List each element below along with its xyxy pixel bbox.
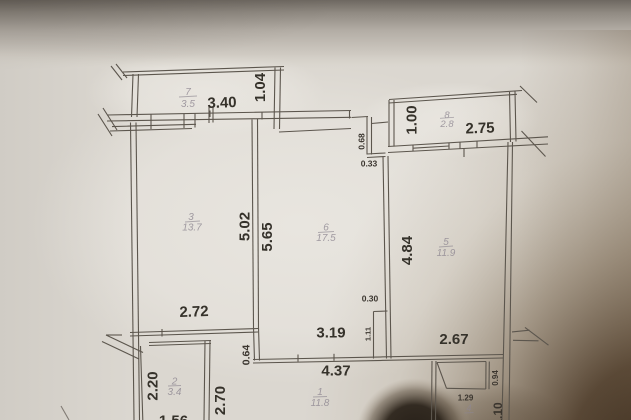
svg-text:3.5: 3.5	[181, 99, 195, 110]
svg-text:2.8: 2.8	[439, 119, 454, 130]
svg-text:5.02: 5.02	[237, 212, 254, 241]
svg-text:1.56: 1.56	[159, 413, 188, 420]
svg-text:1.00: 1.00	[404, 105, 421, 134]
svg-text:17.5: 17.5	[316, 233, 336, 244]
svg-text:1.11: 1.11	[364, 327, 373, 341]
svg-text:4.37: 4.37	[321, 363, 350, 380]
svg-text:2.67: 2.67	[439, 331, 468, 348]
svg-text:3.19: 3.19	[316, 325, 345, 342]
svg-text:2.20: 2.20	[145, 371, 162, 400]
svg-text:0.64: 0.64	[240, 345, 252, 366]
svg-text:1.10: 1.10	[491, 402, 505, 420]
svg-text:4: 4	[466, 403, 471, 413]
svg-text:1.29: 1.29	[458, 394, 474, 403]
svg-text:2.75: 2.75	[465, 119, 495, 137]
svg-text:0.68: 0.68	[357, 133, 367, 150]
svg-text:5.65: 5.65	[259, 222, 276, 251]
svg-text:2.70: 2.70	[212, 386, 229, 415]
svg-text:13.7: 13.7	[182, 223, 202, 234]
svg-text:4.84: 4.84	[399, 235, 416, 265]
svg-text:3.40: 3.40	[207, 94, 237, 112]
svg-text:11.8: 11.8	[311, 398, 330, 409]
svg-text:2.72: 2.72	[179, 303, 209, 321]
svg-text:0.94: 0.94	[491, 370, 500, 386]
svg-text:0.33: 0.33	[361, 159, 378, 169]
svg-text:1.04: 1.04	[252, 72, 269, 102]
svg-text:3.4: 3.4	[168, 387, 182, 398]
svg-text:0.30: 0.30	[362, 294, 379, 304]
svg-text:11.9: 11.9	[437, 248, 456, 259]
